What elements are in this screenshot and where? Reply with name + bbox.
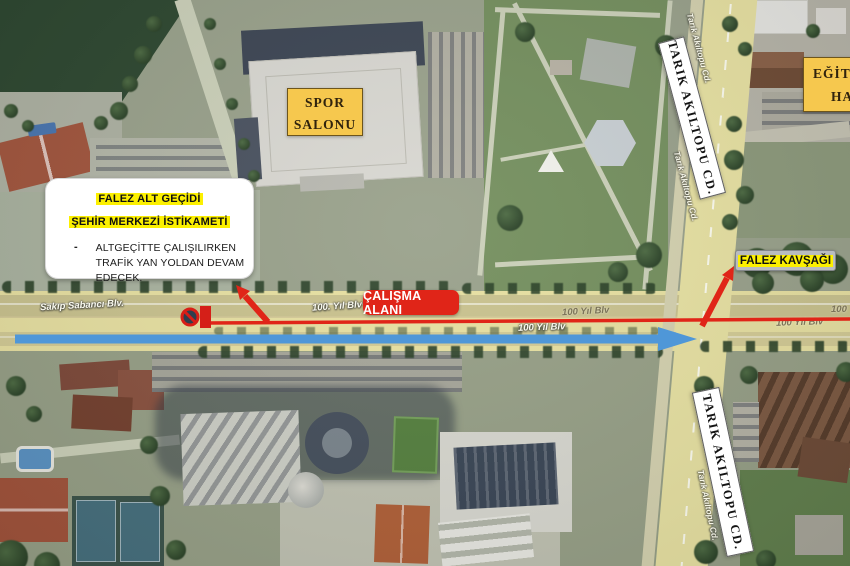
callout-body: - ALTGEÇİTTE ÇALIŞILIRKEN TRAFİK YAN YOL… — [46, 241, 253, 286]
info-callout: FALEZ ALT GEÇİDİ ŞEHİR MERKEZİ İSTİKAMET… — [45, 178, 254, 279]
callout-body-text: ALTGEÇİTTE ÇALIŞILIRKEN TRAFİK YAN YOLDA… — [96, 241, 253, 286]
calisma-alani-label: ÇALIŞMA ALANI — [363, 290, 459, 315]
egitim-label: EĞİTİM HA — [803, 57, 850, 112]
bullet-dash: - — [74, 241, 96, 286]
falez-kavsagi-label: FALEZ KAVŞAĞI — [735, 250, 836, 271]
callout-title: FALEZ ALT GEÇİDİ — [46, 186, 253, 209]
spor-salonu-label: SPOR SALONU — [287, 88, 363, 136]
junction-pointer-arrow — [702, 266, 734, 326]
no-entry-icon — [182, 309, 198, 325]
callout-pointer-arrow — [236, 285, 268, 322]
map-canvas: Sakıp Sabancı Blv. 100. Yıl Blv 100 Yıl … — [0, 0, 850, 566]
detour-arrow — [15, 327, 697, 351]
closure-marker — [200, 306, 211, 328]
road-closure-line — [206, 319, 850, 323]
callout-title: ŞEHİR MERKEZİ İSTİKAMETİ — [46, 209, 253, 232]
